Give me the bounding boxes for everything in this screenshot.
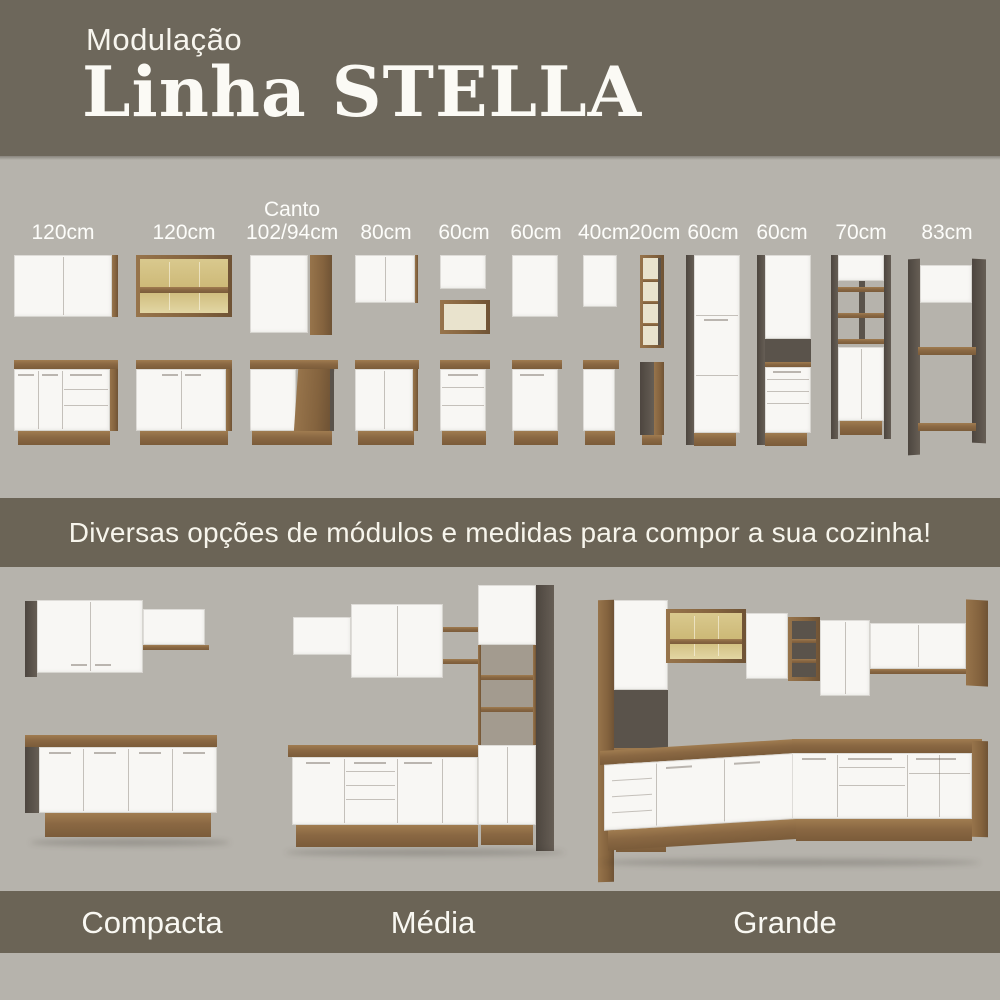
module-60-oven-tower <box>757 255 811 447</box>
countertop <box>25 735 217 747</box>
door-split <box>696 315 738 316</box>
kitchens-section <box>0 567 1000 891</box>
wall-cabinet-short <box>293 617 351 655</box>
tower-open-section <box>478 645 536 745</box>
tall-door <box>614 600 668 690</box>
base-cabinet <box>604 753 796 831</box>
glass-shelf <box>670 639 742 644</box>
page-title: Linha STELLA <box>82 52 642 133</box>
drawer-line <box>909 773 970 774</box>
tall-cabinet <box>694 255 740 433</box>
countertop <box>440 360 490 369</box>
wood-underside <box>143 645 209 650</box>
side-panel <box>415 255 418 303</box>
modules-section: 120cm 120cm Canto 102/94cm 80cm 60cm 60c… <box>0 156 1000 498</box>
drawer-line <box>767 391 809 392</box>
kitchen-media <box>285 567 580 891</box>
handle <box>354 762 386 764</box>
wall-cabinet <box>746 613 788 679</box>
countertop <box>14 360 118 369</box>
module-60-niche <box>440 255 490 447</box>
handle <box>95 664 111 666</box>
handle <box>18 374 34 376</box>
plinth <box>514 431 558 445</box>
countertop <box>288 745 478 757</box>
glass-cabinet <box>140 259 228 313</box>
drawer-line <box>346 799 395 800</box>
kitchen-label-compacta: Compacta <box>62 904 242 942</box>
drawer-stack <box>765 367 811 433</box>
module-40 <box>583 255 619 447</box>
kitchen-label-grande: Grande <box>695 904 875 942</box>
side-panel <box>686 255 694 445</box>
plinth <box>18 431 110 445</box>
drawer-line <box>442 387 484 388</box>
base-cabinet <box>512 369 558 431</box>
wood-shelf <box>918 347 976 355</box>
wood-shelf <box>792 639 816 643</box>
wood-end-panel <box>966 599 988 686</box>
handle <box>94 752 116 754</box>
drawer-line <box>64 389 108 390</box>
base-cabinet <box>39 747 217 813</box>
glass-shelf <box>140 287 228 293</box>
countertop <box>512 360 562 369</box>
ground-shadow <box>285 849 565 856</box>
size-label-2: 120cm <box>136 220 232 246</box>
side-panel <box>757 255 765 445</box>
plinth <box>296 825 478 847</box>
wood-shelf <box>792 659 816 663</box>
wood-shelf <box>838 339 884 344</box>
door-divider <box>724 759 725 821</box>
door-divider <box>63 257 64 315</box>
door-divider <box>344 759 345 823</box>
size-label-12: 83cm <box>910 220 984 246</box>
drawer-line <box>839 785 905 786</box>
door-divider <box>181 371 182 429</box>
size-label-9: 60cm <box>687 220 739 246</box>
plinth <box>358 431 414 445</box>
module-corner <box>250 255 338 447</box>
drawer-line <box>346 771 395 772</box>
glass-mullion <box>169 262 170 310</box>
drawer-line <box>346 785 395 786</box>
tower-side-panel <box>536 585 554 851</box>
module-70-multiuse <box>831 255 891 447</box>
corner-shelf-back <box>792 621 816 677</box>
size-label-10: 60cm <box>756 220 808 246</box>
base-cabinet <box>250 369 296 431</box>
drawer-line <box>612 778 652 781</box>
wood-shelf <box>838 313 884 318</box>
wall-cabinet <box>14 255 112 317</box>
door-divider <box>861 349 862 419</box>
door-divider <box>656 764 657 826</box>
wood-shelf <box>918 423 976 431</box>
door-divider <box>845 622 846 694</box>
countertop <box>583 360 619 369</box>
glass-mullion <box>718 616 719 656</box>
plinth <box>796 819 972 841</box>
drawer-line <box>442 405 484 406</box>
size-label-4: 80cm <box>355 220 417 246</box>
drawer-line <box>767 379 809 380</box>
wood-shelf <box>478 707 536 712</box>
banner-text: Diversas opções de módulos e medidas par… <box>69 517 931 549</box>
handle <box>71 664 87 666</box>
side-panel <box>654 362 664 435</box>
size-label-11: 70cm <box>830 220 892 246</box>
base-cabinet <box>292 757 478 825</box>
plinth <box>694 433 736 446</box>
wood-end-panel <box>972 741 988 838</box>
door-divider <box>38 371 39 429</box>
plinth <box>642 435 662 445</box>
wall-cabinet <box>355 255 415 303</box>
base-cabinet <box>14 369 110 431</box>
module-80 <box>355 255 419 447</box>
corner-column <box>310 255 332 335</box>
kitchen-grande <box>590 567 990 891</box>
handle <box>306 762 330 764</box>
wood-shelf <box>643 323 658 326</box>
wood-shelf <box>443 659 479 664</box>
wood-shelf <box>443 627 479 632</box>
corner-door <box>294 369 334 433</box>
wood-edge <box>533 645 536 745</box>
wall-cabinet <box>250 255 308 333</box>
size-label-5: 60cm <box>438 220 490 246</box>
door-divider <box>442 759 443 823</box>
plinth <box>765 433 807 446</box>
module-120-glass <box>136 255 232 447</box>
banner-band: Diversas opções de módulos e medidas par… <box>0 498 1000 567</box>
door-divider <box>918 625 919 667</box>
kitchen-compacta <box>20 567 230 891</box>
door-divider <box>90 602 91 671</box>
wood-shelf <box>838 287 884 292</box>
lower-cabinet <box>838 347 884 421</box>
footer-band: Compacta Média Grande <box>0 891 1000 953</box>
side-panel <box>413 369 418 431</box>
top-cabinet <box>838 255 884 281</box>
size-label-8: 20cm <box>629 220 671 246</box>
wall-cabinet <box>512 255 558 317</box>
wall-cabinet <box>37 600 143 673</box>
drawer-line <box>64 405 108 406</box>
handle <box>183 752 205 754</box>
handle <box>162 374 178 376</box>
countertop <box>250 360 338 369</box>
drawer-line <box>612 794 652 797</box>
base-cabinet <box>583 369 615 431</box>
wall-cabinet-short <box>143 609 205 645</box>
wall-cabinet <box>820 620 870 696</box>
side-panel <box>110 369 118 431</box>
side-panel <box>25 601 37 677</box>
door-divider <box>384 371 385 429</box>
base-cabinet <box>792 753 972 819</box>
handle <box>70 374 102 376</box>
door-divider <box>62 371 63 429</box>
module-120-doors <box>14 255 118 447</box>
side-panel <box>831 255 838 439</box>
size-label-1: 120cm <box>11 220 115 246</box>
size-label-6: 60cm <box>510 220 562 246</box>
handle <box>520 374 544 376</box>
wood-shelf <box>643 301 658 304</box>
shelf-inner-shadow <box>658 258 661 345</box>
wood-underside <box>870 669 966 674</box>
tower-top-cabinet <box>478 585 536 645</box>
handle <box>704 319 728 321</box>
handle <box>404 762 432 764</box>
door-divider <box>837 755 838 817</box>
side-panel <box>25 747 39 813</box>
module-20-shelves <box>640 255 664 447</box>
plinth <box>481 825 533 845</box>
glass-mullion <box>694 616 695 656</box>
module-83-open-tower <box>908 259 986 459</box>
door-divider <box>83 749 84 811</box>
plinth <box>45 813 211 837</box>
handle <box>49 752 71 754</box>
side-panel <box>330 369 334 431</box>
base-cabinet <box>355 369 413 431</box>
glass-cabinet <box>670 613 742 659</box>
door-divider <box>939 755 940 817</box>
side-panel <box>112 255 118 317</box>
handle <box>139 752 161 754</box>
open-niche <box>444 304 486 330</box>
narrow-base-front <box>640 362 654 435</box>
side-panel <box>226 369 232 431</box>
wall-cabinet <box>440 255 486 289</box>
size-label-7: 40cm <box>578 220 620 246</box>
door-divider <box>172 749 173 811</box>
module-60-door <box>512 255 562 447</box>
handle <box>773 371 801 373</box>
wall-cabinet-wide <box>870 623 966 669</box>
countertop <box>355 360 419 369</box>
countertop <box>792 739 982 753</box>
tower-lower-doors <box>478 745 536 825</box>
handle <box>848 758 892 760</box>
drawer-line <box>839 767 905 768</box>
door-divider <box>385 257 386 301</box>
door-divider <box>128 749 129 811</box>
handle <box>42 374 58 376</box>
plinth <box>140 431 228 445</box>
ground-shadow <box>30 839 230 846</box>
door-divider <box>397 606 398 676</box>
door-split <box>696 375 738 376</box>
drawer-line <box>612 810 652 813</box>
size-label-3: 102/94cm <box>246 220 338 246</box>
module-60-pantry <box>686 255 740 447</box>
plinth <box>442 431 486 445</box>
catalog-page: Modulação Linha STELLA 120cm 120cm Canto… <box>0 0 1000 1000</box>
glass-mullion <box>199 262 200 310</box>
header-band: Modulação Linha STELLA <box>0 0 1000 156</box>
wood-shelf <box>643 279 658 282</box>
plinth <box>840 421 882 435</box>
drawer-line <box>767 403 809 404</box>
door-divider <box>507 747 508 823</box>
wood-edge <box>478 645 481 745</box>
base-cabinet <box>136 369 226 431</box>
door-divider <box>397 759 398 823</box>
handle <box>666 765 692 769</box>
door-divider <box>907 755 908 817</box>
base-cabinet <box>440 369 486 431</box>
top-cabinet <box>920 265 972 303</box>
handle <box>185 374 201 376</box>
handle <box>916 758 956 760</box>
wall-cabinet <box>351 604 443 678</box>
tall-door <box>765 255 811 339</box>
kitchen-label-media: Média <box>343 904 523 942</box>
countertop <box>136 360 232 369</box>
handle <box>448 374 478 376</box>
plinth <box>585 431 615 445</box>
wall-cabinet <box>583 255 617 307</box>
plinth <box>252 431 332 445</box>
handle <box>802 758 826 760</box>
base-left-leg <box>600 735 796 867</box>
wood-shelf <box>478 675 536 680</box>
handle <box>734 761 760 765</box>
side-panel <box>884 255 891 439</box>
